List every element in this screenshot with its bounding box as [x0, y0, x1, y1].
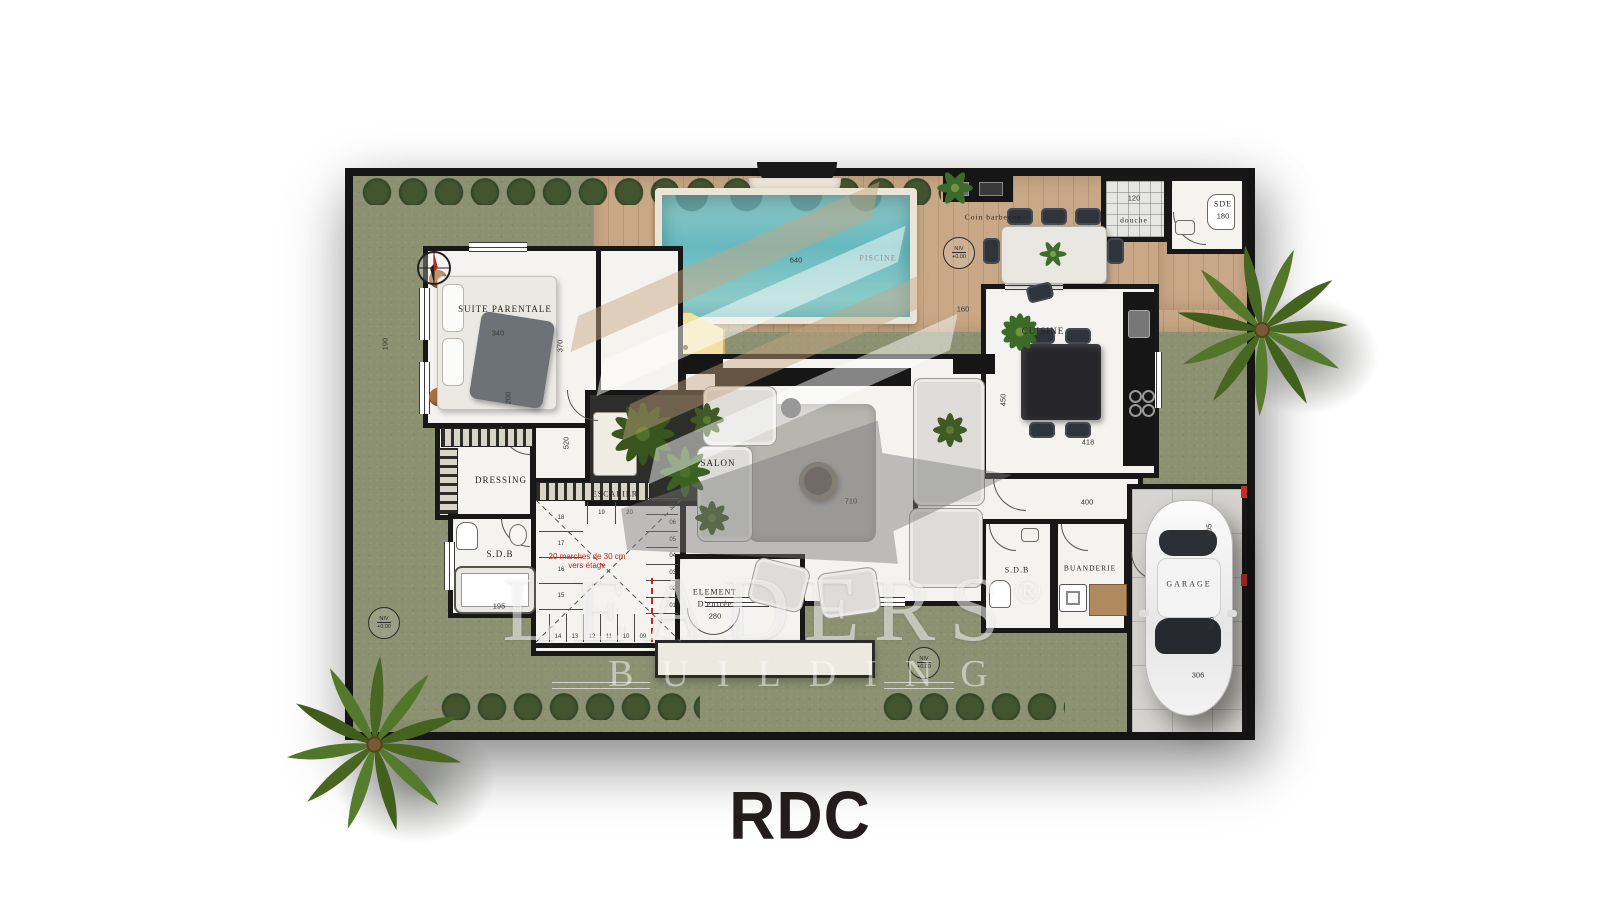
douche-label: douche [1120, 216, 1148, 225]
page-title: RDC [0, 776, 1600, 854]
wardrobe [439, 448, 458, 514]
dim-525: 525 [1207, 617, 1216, 630]
level-marker: NIV+0.00 [368, 607, 400, 639]
salon-label: SALON [700, 458, 735, 468]
tv-wall [715, 368, 911, 386]
hob-burner [1142, 390, 1155, 403]
dim-450: 450 [999, 394, 1008, 407]
car [1143, 496, 1233, 718]
dining-chair [1075, 208, 1101, 225]
barbecue-grill [979, 182, 1003, 196]
window [469, 242, 527, 252]
dim-200: 200 [504, 392, 513, 405]
red-wall-accent [1241, 486, 1247, 498]
side-table [781, 398, 801, 418]
sink [509, 524, 527, 546]
douche-room [1101, 176, 1169, 242]
potted-plant [687, 400, 727, 440]
stair-diagonals [536, 500, 681, 642]
parasol-pole [683, 345, 688, 350]
sdb1-label: S.D.B [486, 549, 513, 559]
level-marker: NIV+0.00 [943, 237, 975, 269]
pillow [442, 338, 464, 386]
dim-905: 905 [1205, 524, 1214, 537]
floor-plan-page: 640 PISCINE 955 160 [0, 0, 1600, 900]
porch-slab [655, 640, 875, 678]
stair-red-dash [651, 578, 653, 642]
sink [1021, 528, 1039, 542]
dim-418: 418 [1082, 438, 1095, 447]
hob-burner [1142, 404, 1155, 417]
dining-chair [1107, 238, 1124, 264]
hob-burner [1129, 390, 1142, 403]
window [419, 288, 430, 340]
toilet [989, 580, 1011, 608]
wall-pier [953, 354, 995, 374]
level-marker: NIV+0.00 [908, 647, 940, 679]
compass-rose [416, 250, 452, 286]
cuisine-label: CUISINE [1022, 326, 1065, 336]
dim-306: 306 [1192, 671, 1205, 680]
window [419, 362, 430, 414]
pool-width-dim: 640 [790, 256, 803, 265]
table-centerpiece-plant [1036, 237, 1070, 271]
courtyard-plant [657, 444, 713, 500]
sde-label: SDE [1214, 200, 1232, 209]
kitchen-sink [1128, 310, 1150, 338]
hedge-row-bottom-right [880, 692, 1065, 722]
palm-tree [1167, 235, 1357, 425]
dim-195: 195 [493, 602, 506, 611]
kitchen-chair [1065, 328, 1091, 344]
piscine-label: PISCINE [859, 254, 896, 263]
dim-400: 400 [1081, 498, 1094, 507]
entree-dim: 280 [709, 612, 722, 621]
dim-190: 190 [381, 338, 390, 351]
douche-dim: 120 [1128, 194, 1141, 203]
sink [1175, 220, 1195, 235]
stair-note: 20 marches de 30 cmvers étage [529, 552, 645, 570]
toilet [456, 522, 478, 550]
armchair [816, 566, 882, 620]
garage-label: GARAGE [1166, 580, 1211, 589]
washing-machine [1059, 584, 1087, 612]
entree-label-1: ELEMENT [693, 588, 737, 597]
sdb2-label: S.D.B [1005, 566, 1030, 575]
laundry-counter [1089, 584, 1127, 616]
sde-dim: 180 [1217, 212, 1230, 221]
entree-label-2: D'entrée [698, 600, 733, 609]
dim-370: 370 [556, 340, 565, 353]
dining-chair [983, 238, 1000, 264]
red-wall-accent [1241, 574, 1247, 586]
dim-710: 710 [845, 497, 858, 506]
car-mirror [1139, 610, 1149, 617]
coffee-table [799, 462, 837, 500]
car-mirror [1227, 610, 1237, 617]
buanderie-label: BUANDERIE [1064, 564, 1116, 573]
dining-chair [1041, 208, 1067, 225]
site-plan: 640 PISCINE 955 160 [345, 168, 1255, 740]
potted-plant [692, 498, 732, 538]
kitchen-chair [1065, 422, 1091, 438]
kitchen-island [1021, 344, 1101, 420]
potted-plant [934, 167, 976, 209]
barbecue-label: Coin barbecue [965, 213, 1022, 222]
potted-plant [930, 410, 970, 450]
deck-east-dim: 160 [957, 305, 970, 314]
wardrobe [441, 428, 533, 447]
kitchen-chair [1029, 422, 1055, 438]
dim-340: 340 [492, 329, 505, 338]
suite-label: SUITE PARENTALE [458, 304, 552, 314]
hob-burner [1129, 404, 1142, 417]
escalier-label: ESCALIER [592, 490, 638, 499]
dim-520: 520 [562, 437, 571, 450]
dressing-label: DRESSING [475, 475, 527, 485]
sofa-module [909, 508, 983, 588]
